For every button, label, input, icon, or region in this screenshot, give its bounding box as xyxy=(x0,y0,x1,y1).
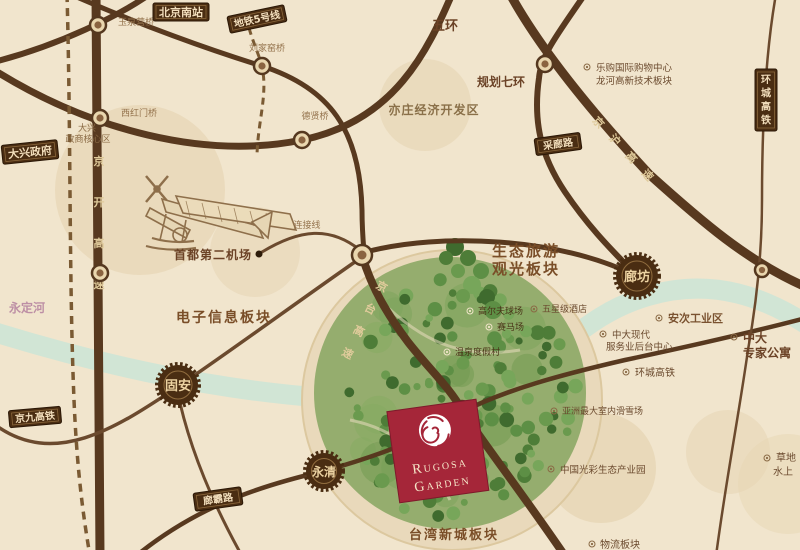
badge-huancheng-rail: 环城高铁 xyxy=(755,69,777,131)
svg-text:中大现代: 中大现代 xyxy=(612,329,651,341)
svg-text:中国光彩生态产业园: 中国光彩生态产业园 xyxy=(560,464,646,476)
svg-text:五星级酒店: 五星级酒店 xyxy=(542,303,587,315)
area-yongdinghe: 永定河 xyxy=(8,300,45,315)
area-daxing-core-1: 大兴 xyxy=(78,122,96,134)
map-canvas: 京开高速 京台高速 京沪高速 五环 规划七环 玉泉营桥 刘家窑桥 西红门桥 德贤… xyxy=(0,0,800,550)
svg-text:亚洲最大室内滑雪场: 亚洲最大室内滑雪场 xyxy=(562,405,643,417)
area-taiwan: 台湾新城板块 xyxy=(409,527,499,543)
area-dianzi: 电子信息板块 xyxy=(176,309,272,326)
svg-text:专家公寓: 专家公寓 xyxy=(743,345,791,360)
qihuan-label: 规划七环 xyxy=(477,74,525,89)
area-yizhuang: 亦庄经济开发区 xyxy=(388,102,479,117)
city-yongqing: 永清 xyxy=(306,453,342,489)
poi-indoor-ski: 亚洲最大室内滑雪场 xyxy=(551,405,643,417)
location-map: 京开高速 京台高速 京沪高速 五环 规划七环 玉泉营桥 刘家窑桥 西红门桥 德贤… xyxy=(0,0,800,550)
bridge-yuquanying: 玉泉营桥 xyxy=(118,16,154,28)
svg-text:水上: 水上 xyxy=(773,466,793,478)
poi-guangcai-park: 中国光彩生态产业园 xyxy=(548,464,646,476)
svg-text:北京南站: 北京南站 xyxy=(159,5,203,19)
svg-text:中大: 中大 xyxy=(743,330,767,345)
city-langfang-label: 廊坊 xyxy=(624,269,650,285)
airport-dot xyxy=(256,251,263,258)
svg-text:乐购国际购物中心: 乐购国际购物中心 xyxy=(596,62,673,74)
badge-beijing-south-station: 北京南站 xyxy=(153,3,209,21)
svg-text:龙河高新技术板块: 龙河高新技术板块 xyxy=(596,75,673,87)
bridge-xihongmen: 西红门桥 xyxy=(121,107,157,119)
wuhuan-label: 五环 xyxy=(432,19,458,34)
svg-text:高尔夫球场: 高尔夫球场 xyxy=(478,305,523,317)
svg-text:赛马场: 赛马场 xyxy=(497,321,524,333)
city-langfang: 廊坊 xyxy=(616,255,658,297)
svg-text:服务业后台中心: 服务业后台中心 xyxy=(606,341,673,353)
city-yongqing-label: 永清 xyxy=(311,464,336,479)
connector-line-label: 连接线 xyxy=(293,219,320,231)
svg-text:环城高铁: 环城高铁 xyxy=(635,366,675,379)
area-airport: 首都第二机场 xyxy=(174,247,252,262)
area-shengtai-2: 观光板块 xyxy=(492,260,560,278)
bridge-dexian: 德贤桥 xyxy=(301,110,328,122)
logo-rugosa-garden: Rugosa Garden xyxy=(387,399,489,503)
city-guan-label: 固安 xyxy=(165,378,191,394)
svg-text:温泉度假村: 温泉度假村 xyxy=(455,346,500,358)
svg-text:草地: 草地 xyxy=(776,451,796,464)
area-daxing-core-2: 政商核心区 xyxy=(65,133,110,145)
bridge-liujiayao: 刘家窑桥 xyxy=(249,42,285,54)
city-guan: 固安 xyxy=(158,365,198,405)
svg-text:物流板块: 物流板块 xyxy=(600,538,640,550)
area-shengtai-1: 生态旅游 xyxy=(492,242,560,260)
svg-text:安次工业区: 安次工业区 xyxy=(668,311,723,325)
